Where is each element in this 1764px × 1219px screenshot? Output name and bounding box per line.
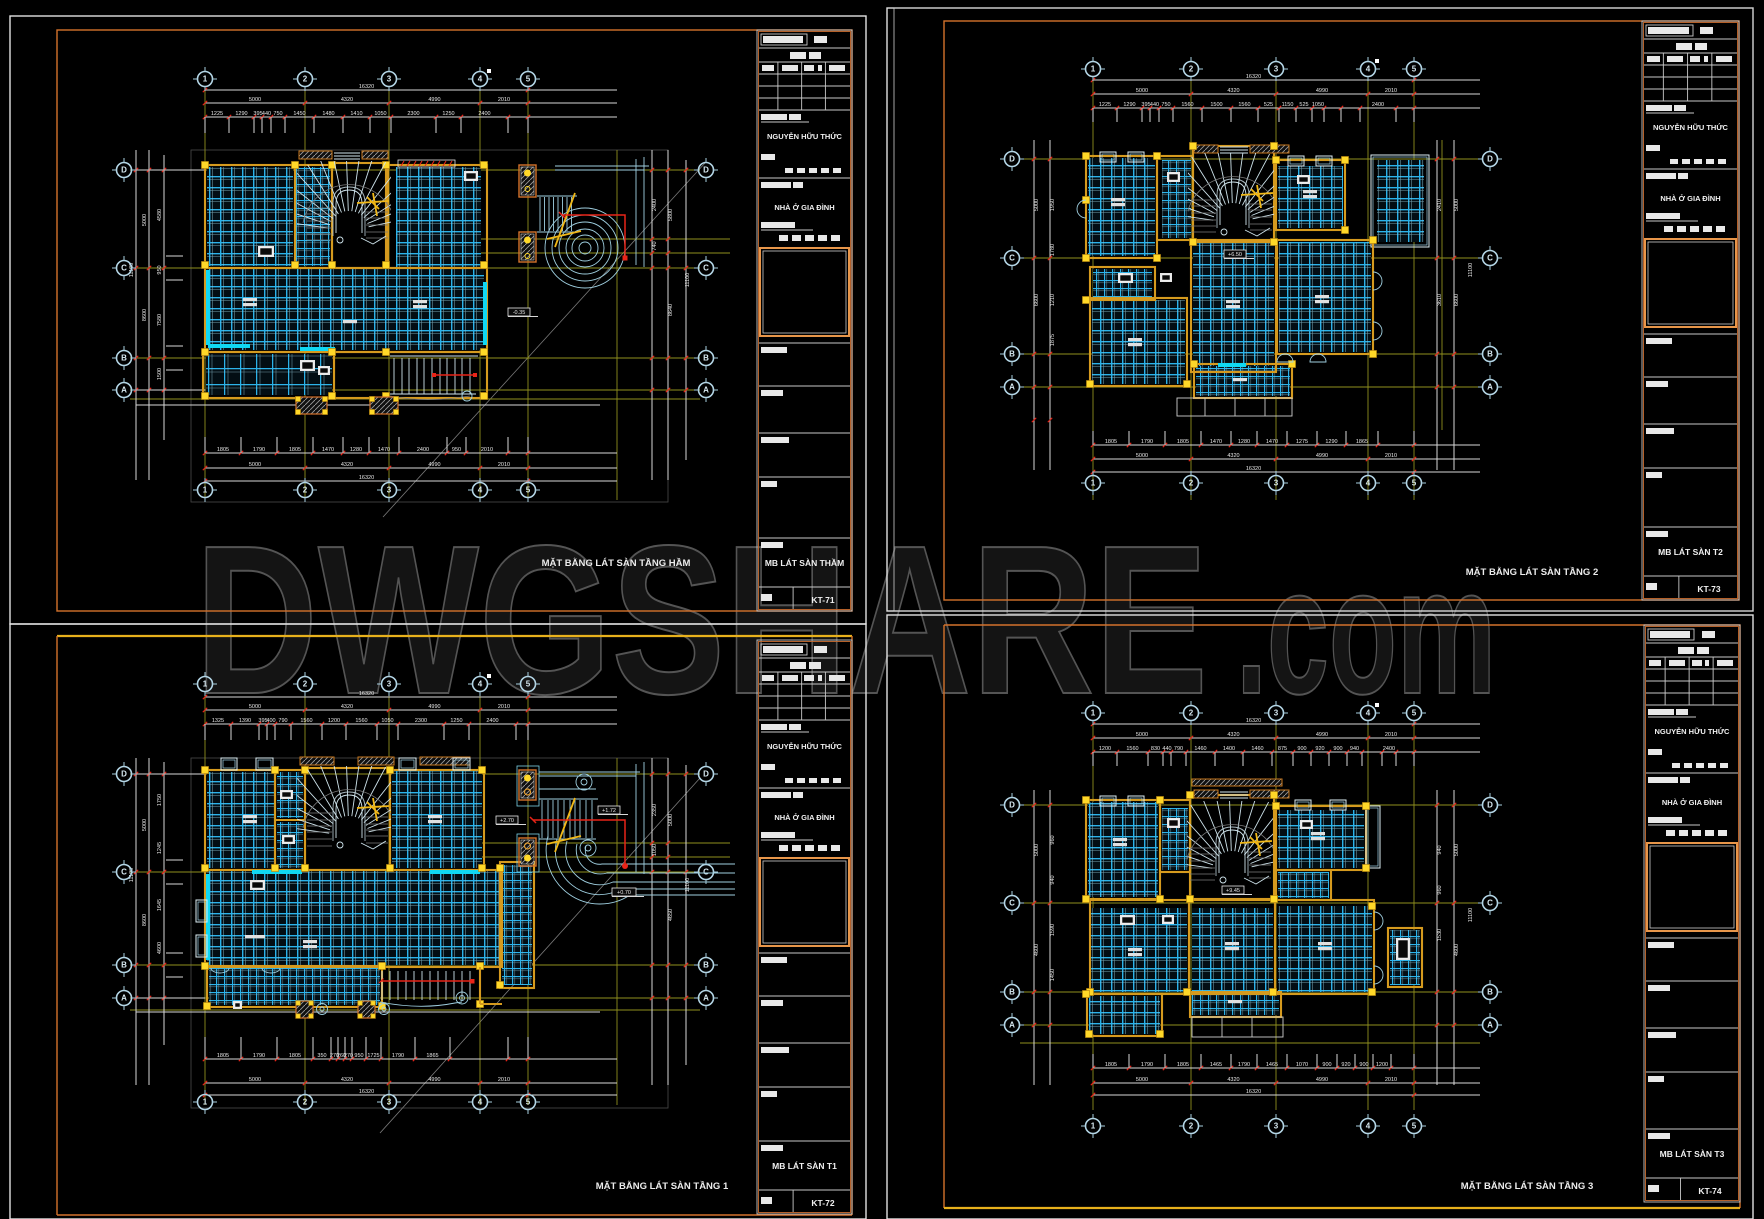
svg-text:4990: 4990	[1316, 453, 1328, 459]
svg-text:16320: 16320	[359, 475, 374, 481]
svg-text:5: 5	[1412, 709, 1417, 718]
svg-text:1450: 1450	[1050, 969, 1056, 981]
svg-text:1210: 1210	[1050, 294, 1056, 306]
svg-text:B: B	[121, 354, 127, 363]
svg-text:5: 5	[526, 486, 531, 495]
svg-text:5000: 5000	[668, 814, 674, 826]
svg-text:1805: 1805	[289, 447, 301, 453]
svg-text:1200: 1200	[1376, 1062, 1388, 1068]
svg-text:11100: 11100	[1468, 263, 1474, 277]
svg-text:2400: 2400	[417, 447, 429, 453]
svg-text:MẶT BẰNG LÁT SÀN TẦNG 3: MẶT BẰNG LÁT SÀN TẦNG 3	[1461, 1181, 1593, 1192]
svg-text:2410: 2410	[1437, 199, 1443, 211]
svg-text:1070: 1070	[1296, 1062, 1308, 1068]
svg-text:440: 440	[1150, 102, 1159, 108]
svg-text:5000: 5000	[1034, 199, 1040, 211]
svg-text:3: 3	[1274, 1122, 1279, 1131]
svg-text:1250: 1250	[442, 111, 454, 117]
svg-text:1460: 1460	[1194, 746, 1206, 752]
svg-text:1865: 1865	[426, 1053, 438, 1059]
svg-text:16320: 16320	[1246, 718, 1261, 724]
svg-text:4320: 4320	[1227, 732, 1239, 738]
svg-text:4650: 4650	[668, 909, 674, 921]
svg-text:C: C	[121, 264, 127, 273]
svg-text:A: A	[121, 386, 127, 395]
svg-text:960: 960	[1050, 835, 1056, 844]
svg-text:A: A	[703, 994, 709, 1003]
svg-text:4: 4	[478, 486, 483, 495]
svg-text:4990: 4990	[428, 97, 440, 103]
svg-text:4600: 4600	[157, 942, 163, 954]
svg-text:D: D	[1487, 801, 1493, 810]
svg-text:2010: 2010	[481, 447, 493, 453]
svg-text:2010: 2010	[1385, 453, 1397, 459]
svg-text:1470: 1470	[322, 447, 334, 453]
svg-text:940: 940	[1437, 845, 1443, 854]
svg-text:3: 3	[1274, 479, 1279, 488]
svg-text:5000: 5000	[1136, 88, 1148, 94]
svg-text:3: 3	[387, 680, 392, 689]
svg-text:1050: 1050	[652, 844, 658, 856]
svg-text:440: 440	[1162, 746, 1171, 752]
svg-text:1050: 1050	[374, 111, 386, 117]
svg-text:B: B	[703, 354, 709, 363]
svg-text:1780: 1780	[1050, 244, 1056, 256]
svg-text:525: 525	[1264, 102, 1273, 108]
svg-text:8600: 8600	[142, 309, 148, 321]
svg-text:1560: 1560	[1238, 102, 1250, 108]
svg-text:KT-72: KT-72	[811, 1198, 834, 1208]
svg-text:740: 740	[652, 241, 658, 250]
svg-text:4990: 4990	[428, 1077, 440, 1083]
svg-text:7580: 7580	[157, 314, 163, 326]
svg-text:NHÀ Ở GIA ĐÌNH: NHÀ Ở GIA ĐÌNH	[774, 813, 834, 822]
svg-text:4990: 4990	[428, 704, 440, 710]
svg-text:A: A	[1009, 383, 1015, 392]
svg-text:1: 1	[203, 486, 208, 495]
svg-text:3: 3	[387, 486, 392, 495]
svg-text:6600: 6600	[1034, 294, 1040, 306]
svg-text:1790: 1790	[392, 1053, 404, 1059]
svg-text:2010: 2010	[498, 704, 510, 710]
svg-text:1290: 1290	[1123, 102, 1135, 108]
svg-text:2: 2	[303, 680, 308, 689]
svg-text:1465: 1465	[1266, 1062, 1278, 1068]
svg-text:2010: 2010	[1385, 88, 1397, 94]
svg-text:NHÀ Ở GIA ĐÌNH: NHÀ Ở GIA ĐÌNH	[1662, 798, 1722, 807]
svg-text:5000: 5000	[249, 462, 261, 468]
svg-text:1560: 1560	[1126, 746, 1138, 752]
svg-text:4990: 4990	[428, 462, 440, 468]
svg-text:16320: 16320	[359, 84, 374, 90]
svg-text:1790: 1790	[1141, 439, 1153, 445]
svg-text:270: 270	[344, 1053, 353, 1059]
svg-text:B: B	[1487, 988, 1493, 997]
svg-text:2: 2	[1189, 709, 1194, 718]
svg-text:1790: 1790	[1141, 1062, 1153, 1068]
svg-text:DWGSHARE: DWGSHARE	[195, 501, 1208, 738]
svg-text:1465: 1465	[1210, 1062, 1222, 1068]
svg-text:1560: 1560	[355, 718, 367, 724]
svg-text:5000: 5000	[1454, 844, 1460, 856]
svg-text:2: 2	[303, 75, 308, 84]
svg-text:2300: 2300	[415, 718, 427, 724]
svg-text:1400: 1400	[1223, 746, 1235, 752]
svg-text:D: D	[703, 166, 709, 175]
svg-text:1865: 1865	[1356, 439, 1368, 445]
svg-text:2400: 2400	[478, 111, 490, 117]
svg-text:1050: 1050	[381, 718, 393, 724]
svg-text:1390: 1390	[239, 718, 251, 724]
svg-text:1805: 1805	[217, 447, 229, 453]
svg-text:1250: 1250	[450, 718, 462, 724]
svg-text:MẶT BẰNG LÁT SÀN TẦNG 1: MẶT BẰNG LÁT SÀN TẦNG 1	[596, 1181, 729, 1192]
svg-text:B: B	[1009, 988, 1015, 997]
svg-text:5000: 5000	[1454, 199, 1460, 211]
svg-text:3: 3	[1274, 65, 1279, 74]
svg-text:D: D	[1009, 155, 1015, 164]
svg-text:8600: 8600	[142, 914, 148, 926]
svg-text:C: C	[703, 264, 709, 273]
svg-text:3: 3	[1274, 709, 1279, 718]
svg-text:KT-71: KT-71	[811, 595, 834, 605]
svg-text:16320: 16320	[1246, 74, 1261, 80]
svg-text:4: 4	[1366, 709, 1371, 718]
svg-text:790: 790	[278, 718, 287, 724]
svg-text:1460: 1460	[1251, 746, 1263, 752]
svg-text:5800: 5800	[668, 209, 674, 221]
svg-text:16320: 16320	[359, 1089, 374, 1095]
svg-text:1050: 1050	[1312, 102, 1324, 108]
svg-text:1805: 1805	[1177, 1062, 1189, 1068]
svg-text:1: 1	[203, 680, 208, 689]
svg-text:4320: 4320	[341, 1077, 353, 1083]
svg-text:4320: 4320	[341, 97, 353, 103]
svg-text:MB LÁT SÀN T2: MB LÁT SÀN T2	[1658, 547, 1723, 557]
svg-text:350: 350	[317, 1053, 326, 1059]
svg-text:4990: 4990	[1316, 88, 1328, 94]
svg-text:1750: 1750	[157, 794, 163, 806]
svg-text:2010: 2010	[1385, 1077, 1397, 1083]
svg-text:5: 5	[1412, 479, 1417, 488]
svg-text:2: 2	[303, 486, 308, 495]
svg-text:A: A	[121, 994, 127, 1003]
svg-text:NHÀ Ở GIA ĐÌNH: NHÀ Ở GIA ĐÌNH	[1660, 194, 1720, 203]
svg-text:D: D	[703, 770, 709, 779]
svg-text:C: C	[1009, 254, 1015, 263]
svg-text:A: A	[703, 386, 709, 395]
svg-text:830: 830	[1151, 746, 1160, 752]
svg-text:750: 750	[1161, 102, 1170, 108]
svg-text:1470: 1470	[1266, 439, 1278, 445]
svg-text:MẶT BẰNG LÁT SÀN TẦNG 2: MẶT BẰNG LÁT SÀN TẦNG 2	[1466, 567, 1598, 578]
svg-text:5000: 5000	[1136, 1077, 1148, 1083]
svg-text:5000: 5000	[142, 214, 148, 226]
svg-text:2010: 2010	[498, 1077, 510, 1083]
svg-text:MB LÁT SÀN THẦM: MB LÁT SÀN THẦM	[765, 558, 844, 568]
svg-text:525: 525	[1299, 102, 1308, 108]
svg-text:3: 3	[387, 75, 392, 84]
svg-text:875: 875	[1278, 746, 1287, 752]
svg-text:+2.70: +2.70	[500, 818, 514, 824]
svg-text:NGUYỄN HỮU THỨC: NGUYỄN HỮU THỨC	[767, 132, 843, 141]
svg-text:1: 1	[203, 1098, 208, 1107]
svg-text:1645: 1645	[157, 899, 163, 911]
svg-text:2010: 2010	[498, 462, 510, 468]
svg-text:5000: 5000	[1136, 453, 1148, 459]
svg-text:2010: 2010	[498, 97, 510, 103]
svg-text:4: 4	[478, 1098, 483, 1107]
svg-text:1280: 1280	[350, 447, 362, 453]
svg-text:900: 900	[1297, 746, 1306, 752]
svg-text:B: B	[703, 961, 709, 970]
svg-text:1225: 1225	[211, 111, 223, 117]
svg-text:5000: 5000	[142, 819, 148, 831]
svg-text:440: 440	[262, 111, 271, 117]
svg-text:1805: 1805	[1177, 439, 1189, 445]
svg-text:1725: 1725	[367, 1053, 379, 1059]
svg-text:2010: 2010	[1385, 732, 1397, 738]
svg-text:4320: 4320	[1227, 88, 1239, 94]
svg-text:1280: 1280	[1238, 439, 1250, 445]
svg-text:NGUYỄN HỮU THỨC: NGUYỄN HỮU THỨC	[1653, 123, 1729, 132]
svg-text:1150: 1150	[1282, 102, 1294, 108]
svg-text:2350: 2350	[652, 804, 658, 816]
svg-text:16320: 16320	[1246, 466, 1261, 472]
svg-text:950: 950	[354, 1053, 363, 1059]
svg-text:C: C	[1009, 899, 1015, 908]
svg-text:4: 4	[478, 75, 483, 84]
svg-text:D: D	[1009, 801, 1015, 810]
svg-text:900: 900	[1333, 746, 1342, 752]
svg-text:+9.45: +9.45	[1226, 888, 1240, 894]
svg-text:1275: 1275	[1296, 439, 1308, 445]
svg-text:KT-74: KT-74	[1698, 1186, 1721, 1196]
svg-text:5000: 5000	[249, 1077, 261, 1083]
svg-text:MB LÁT SÀN T3: MB LÁT SÀN T3	[1660, 1149, 1725, 1159]
svg-text:1245: 1245	[157, 842, 163, 854]
svg-text:1450: 1450	[293, 111, 305, 117]
svg-text:1325: 1325	[212, 718, 224, 724]
svg-text:4: 4	[1366, 65, 1371, 74]
svg-text:NHÀ Ở GIA ĐÌNH: NHÀ Ở GIA ĐÌNH	[774, 203, 834, 212]
svg-text:MB LÁT SÀN T1: MB LÁT SÀN T1	[772, 1161, 837, 1171]
svg-text:1805: 1805	[1105, 1062, 1117, 1068]
svg-text:750: 750	[273, 111, 282, 117]
svg-text:3: 3	[387, 1098, 392, 1107]
svg-text:8640: 8640	[668, 304, 674, 316]
svg-text:1410: 1410	[350, 111, 362, 117]
svg-text:+0.70: +0.70	[617, 890, 631, 896]
svg-text:1790: 1790	[253, 447, 265, 453]
svg-text:2400: 2400	[486, 718, 498, 724]
svg-text:1: 1	[1091, 1122, 1096, 1131]
svg-text:4580: 4580	[157, 209, 163, 221]
svg-text:D: D	[121, 166, 127, 175]
svg-text:4320: 4320	[1227, 1077, 1239, 1083]
svg-text:KT-73: KT-73	[1697, 584, 1720, 594]
svg-text:MẶT BẰNG LÁT SÀN TẦNG HẦM: MẶT BẰNG LÁT SÀN TẦNG HẦM	[542, 558, 691, 569]
svg-text:D: D	[1487, 155, 1493, 164]
svg-text:5000: 5000	[249, 704, 261, 710]
svg-text:C: C	[121, 868, 127, 877]
svg-text:16320: 16320	[359, 691, 374, 697]
svg-text:1225: 1225	[1099, 102, 1111, 108]
svg-text:NGUYỄN HỮU THỨC: NGUYỄN HỮU THỨC	[1655, 727, 1731, 736]
svg-text:2300: 2300	[407, 111, 419, 117]
svg-text:920: 920	[1341, 1062, 1350, 1068]
svg-text:B: B	[1009, 350, 1015, 359]
svg-text:1500: 1500	[1210, 102, 1222, 108]
svg-text:1: 1	[1091, 65, 1096, 74]
svg-text:4: 4	[1366, 479, 1371, 488]
svg-text:C: C	[1487, 254, 1493, 263]
svg-text:5000: 5000	[1034, 844, 1040, 856]
svg-text:1: 1	[1091, 479, 1096, 488]
svg-text:950: 950	[452, 447, 461, 453]
svg-text:B: B	[121, 961, 127, 970]
svg-text:1560: 1560	[300, 718, 312, 724]
svg-text:900: 900	[1359, 1062, 1368, 1068]
svg-text:1290: 1290	[1325, 439, 1337, 445]
svg-text:1530: 1530	[1437, 929, 1443, 941]
svg-text:5: 5	[526, 75, 531, 84]
svg-text:+6.50: +6.50	[1228, 252, 1242, 258]
svg-text:2: 2	[1189, 1122, 1194, 1131]
svg-text:2: 2	[303, 1098, 308, 1107]
svg-text:4990: 4990	[1316, 732, 1328, 738]
svg-text:5: 5	[526, 1098, 531, 1107]
svg-text:1: 1	[203, 75, 208, 84]
svg-text:1470: 1470	[378, 447, 390, 453]
svg-text:A: A	[1009, 1021, 1015, 1030]
svg-text:4320: 4320	[341, 462, 353, 468]
svg-text:B: B	[1487, 350, 1493, 359]
svg-text:.com: .com	[1236, 530, 1496, 732]
svg-text:4600: 4600	[1034, 944, 1040, 956]
svg-text:A: A	[1487, 1021, 1493, 1030]
svg-text:2400: 2400	[1372, 102, 1384, 108]
svg-text:1200: 1200	[328, 718, 340, 724]
svg-text:C: C	[1487, 899, 1493, 908]
svg-text:5000: 5000	[249, 97, 261, 103]
svg-text:950: 950	[157, 265, 163, 274]
svg-text:2400: 2400	[1383, 746, 1395, 752]
svg-text:NGUYỄN HỮU THỨC: NGUYỄN HỮU THỨC	[767, 742, 843, 751]
svg-text:920: 920	[1315, 746, 1324, 752]
svg-text:3610: 3610	[1437, 294, 1443, 306]
svg-text:2: 2	[1189, 479, 1194, 488]
svg-text:1790: 1790	[1238, 1062, 1250, 1068]
svg-text:1805: 1805	[217, 1053, 229, 1059]
svg-text:1200: 1200	[1099, 746, 1111, 752]
svg-text:1560: 1560	[1181, 102, 1193, 108]
svg-text:940: 940	[1050, 875, 1056, 884]
svg-text:5: 5	[526, 680, 531, 689]
svg-text:1: 1	[1091, 709, 1096, 718]
svg-text:4: 4	[478, 680, 483, 689]
svg-text:A: A	[1487, 383, 1493, 392]
svg-text:400: 400	[266, 718, 275, 724]
svg-text:4320: 4320	[341, 704, 353, 710]
svg-text:16320: 16320	[1246, 1089, 1261, 1095]
svg-text:1590: 1590	[1050, 924, 1056, 936]
svg-text:5: 5	[1412, 65, 1417, 74]
svg-text:11100: 11100	[1468, 908, 1474, 922]
svg-text:900: 900	[1322, 1062, 1331, 1068]
svg-text:960: 960	[1437, 885, 1443, 894]
svg-text:1875: 1875	[1050, 334, 1056, 346]
svg-text:6600: 6600	[1454, 294, 1460, 306]
svg-text:1805: 1805	[1105, 439, 1117, 445]
svg-text:1290: 1290	[235, 111, 247, 117]
svg-text:5: 5	[1412, 1122, 1417, 1131]
svg-text:1470: 1470	[1210, 439, 1222, 445]
svg-text:1500: 1500	[157, 368, 163, 380]
svg-text:C: C	[703, 868, 709, 877]
svg-text:4990: 4990	[1316, 1077, 1328, 1083]
svg-text:1950: 1950	[1050, 199, 1056, 211]
svg-text:940: 940	[1350, 746, 1359, 752]
svg-text:D: D	[121, 770, 127, 779]
svg-text:+1.72: +1.72	[602, 808, 616, 814]
svg-text:790: 790	[1174, 746, 1183, 752]
svg-text:2: 2	[1189, 65, 1194, 74]
svg-text:5000: 5000	[1136, 732, 1148, 738]
svg-text:-0.35: -0.35	[513, 310, 526, 316]
svg-text:2400: 2400	[652, 199, 658, 211]
svg-text:1480: 1480	[322, 111, 334, 117]
svg-text:4320: 4320	[1227, 453, 1239, 459]
svg-text:1805: 1805	[289, 1053, 301, 1059]
svg-text:4600: 4600	[1454, 944, 1460, 956]
svg-text:1790: 1790	[253, 1053, 265, 1059]
svg-text:4: 4	[1366, 1122, 1371, 1131]
